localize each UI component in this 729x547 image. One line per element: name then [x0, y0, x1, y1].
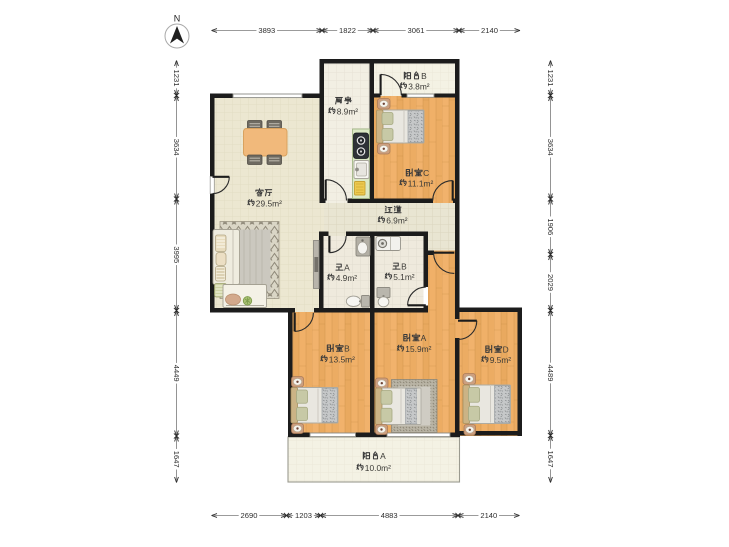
svg-text:6.9m²: 6.9m²: [386, 216, 408, 226]
svg-text:3634: 3634: [546, 139, 555, 156]
svg-text:4883: 4883: [381, 511, 398, 520]
svg-text:4449: 4449: [172, 365, 181, 382]
svg-text:3.8m²: 3.8m²: [408, 82, 430, 92]
svg-text:1647: 1647: [546, 451, 555, 468]
svg-text:8.9m²: 8.9m²: [337, 107, 359, 117]
svg-text:2690: 2690: [241, 511, 258, 520]
svg-text:B: B: [344, 344, 350, 354]
svg-text:13.5m²: 13.5m²: [329, 355, 355, 365]
svg-text:2140: 2140: [481, 26, 498, 35]
svg-text:4.9m²: 4.9m²: [336, 273, 358, 283]
svg-text:C: C: [423, 168, 429, 178]
svg-text:A: A: [344, 263, 350, 273]
svg-text:B: B: [401, 262, 407, 272]
svg-text:4489: 4489: [546, 365, 555, 382]
svg-text:5.1m²: 5.1m²: [393, 272, 415, 282]
svg-text:1822: 1822: [339, 26, 356, 35]
svg-text:3893: 3893: [258, 26, 275, 35]
svg-text:1231: 1231: [172, 70, 181, 87]
svg-text:3995: 3995: [172, 246, 181, 263]
svg-text:2029: 2029: [546, 274, 555, 291]
svg-text:3634: 3634: [172, 139, 181, 156]
svg-text:9.5m²: 9.5m²: [490, 355, 512, 365]
svg-text:B: B: [421, 71, 427, 81]
svg-text:10.0m²: 10.0m²: [365, 463, 391, 473]
svg-text:1231: 1231: [546, 70, 555, 87]
svg-text:A: A: [421, 333, 427, 343]
svg-text:3061: 3061: [408, 26, 425, 35]
svg-text:2140: 2140: [480, 511, 497, 520]
svg-text:A: A: [380, 451, 386, 461]
svg-text:1203: 1203: [295, 511, 312, 520]
svg-text:29.5m²: 29.5m²: [256, 199, 282, 209]
svg-text:11.1m²: 11.1m²: [408, 179, 434, 189]
svg-text:1906: 1906: [546, 218, 555, 235]
svg-text:N: N: [174, 14, 181, 24]
svg-text:15.9m²: 15.9m²: [405, 344, 431, 354]
svg-text:D: D: [503, 345, 509, 355]
svg-text:1647: 1647: [172, 451, 181, 468]
